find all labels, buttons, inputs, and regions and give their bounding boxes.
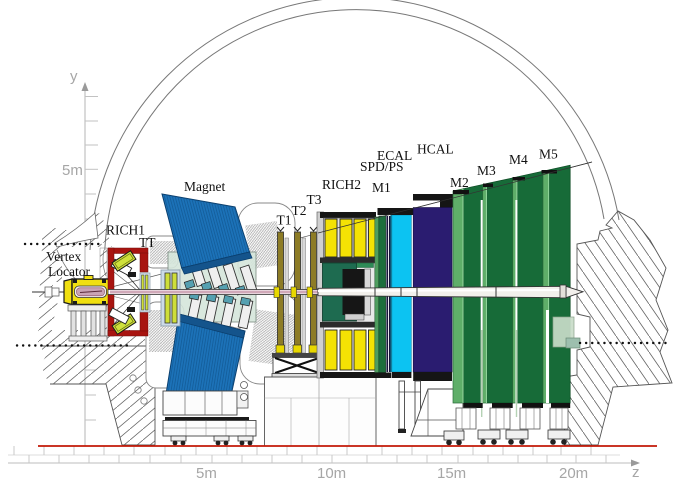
svg-text:RICH2: RICH2 xyxy=(322,177,361,192)
svg-text:20m: 20m xyxy=(559,465,588,480)
svg-text:10m: 10m xyxy=(317,465,346,480)
svg-text:z: z xyxy=(632,464,640,480)
svg-text:T3: T3 xyxy=(307,192,322,207)
svg-text:Locator: Locator xyxy=(48,264,90,279)
svg-text:HCAL: HCAL xyxy=(417,142,454,157)
svg-text:ECAL: ECAL xyxy=(377,148,412,163)
svg-text:y: y xyxy=(70,68,78,85)
svg-text:5m: 5m xyxy=(62,162,83,179)
svg-text:M5: M5 xyxy=(539,147,558,162)
svg-text:5m: 5m xyxy=(196,465,217,480)
svg-text:Vertex: Vertex xyxy=(46,249,81,264)
svg-text:TT: TT xyxy=(139,235,156,250)
svg-text:M4: M4 xyxy=(509,152,528,167)
svg-text:Magnet: Magnet xyxy=(184,179,225,194)
svg-text:M1: M1 xyxy=(372,180,391,195)
svg-text:T1: T1 xyxy=(277,213,292,228)
svg-text:M3: M3 xyxy=(477,163,496,178)
svg-text:T2: T2 xyxy=(292,203,307,218)
svg-text:15m: 15m xyxy=(437,465,466,480)
svg-text:M2: M2 xyxy=(450,175,469,190)
